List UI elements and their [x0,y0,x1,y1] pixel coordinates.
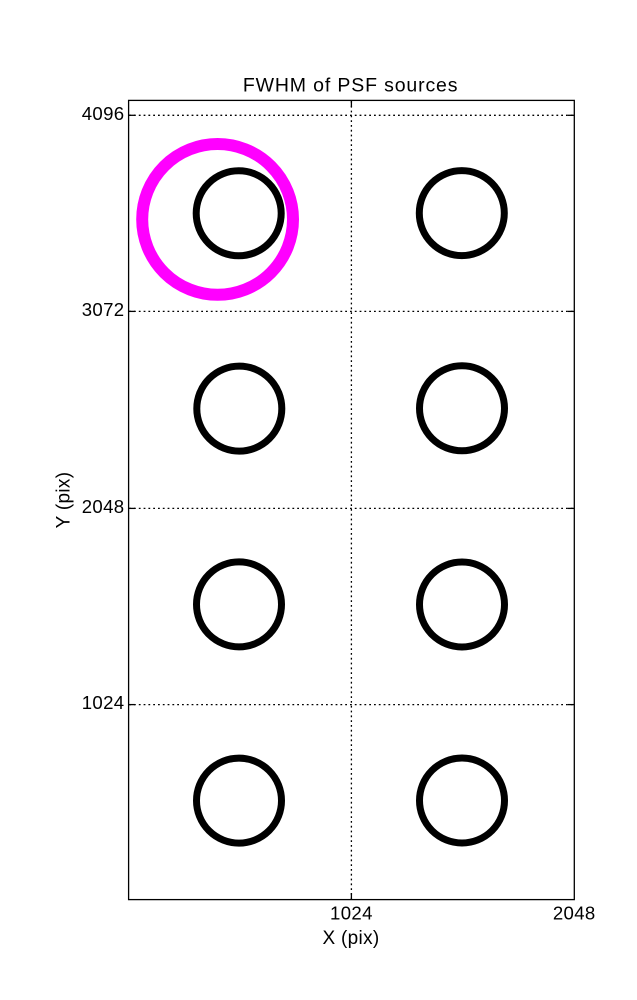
svg-text:2048: 2048 [553,902,596,923]
svg-text:Y (pix): Y (pix) [54,472,75,529]
svg-text:3072: 3072 [82,299,125,320]
svg-text:X (pix): X (pix) [323,928,380,949]
svg-text:1024: 1024 [330,902,373,923]
svg-text:4096: 4096 [82,103,125,124]
svg-text:1024: 1024 [82,692,125,713]
svg-text:FWHM of PSF sources: FWHM of PSF sources [243,75,459,97]
svg-text:2048: 2048 [82,496,125,517]
